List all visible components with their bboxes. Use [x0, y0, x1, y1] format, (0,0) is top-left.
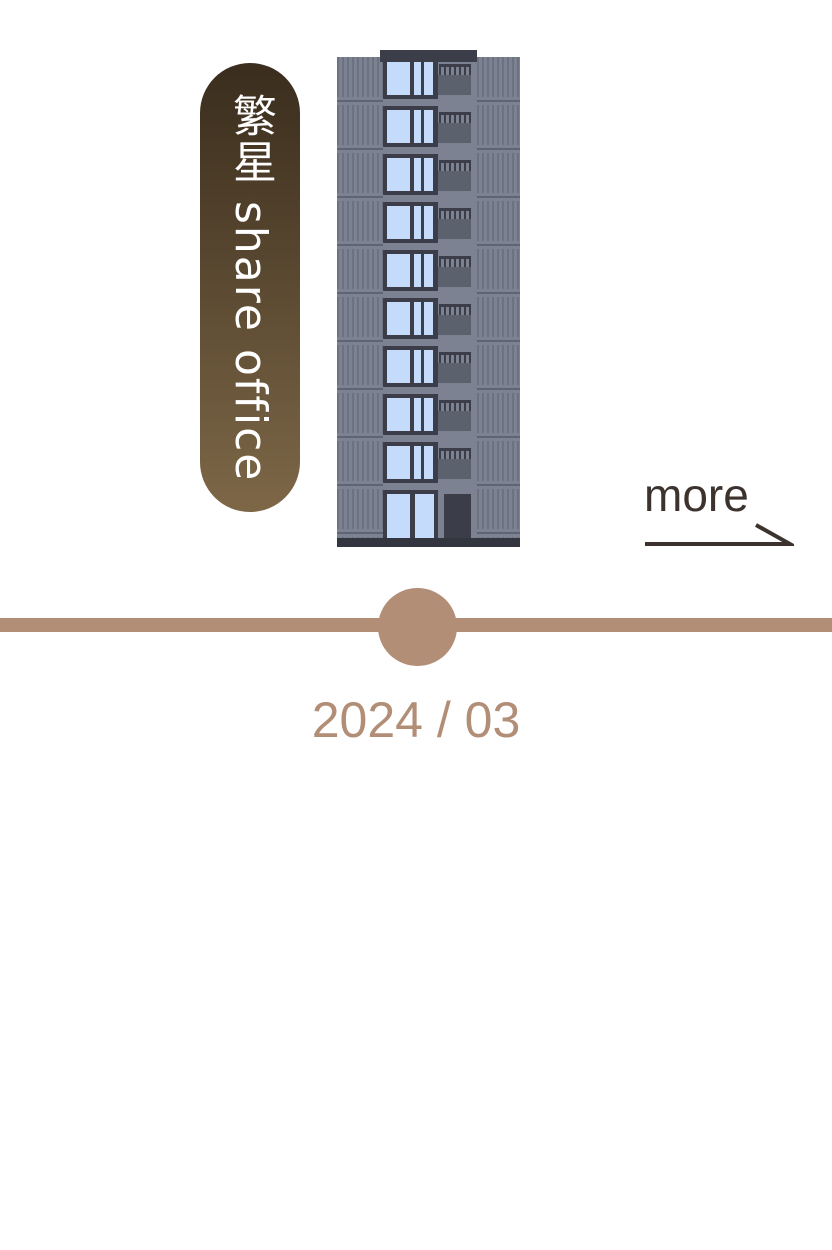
timeline-date: 2024 / 03 — [0, 693, 832, 748]
balcony-panel — [438, 315, 471, 335]
window-pane — [387, 302, 410, 335]
window-pane — [424, 350, 433, 383]
window-pane — [387, 494, 410, 538]
spandrel — [383, 287, 438, 302]
window-pane — [424, 302, 433, 335]
balcony-railing — [439, 208, 471, 219]
window-pane — [414, 446, 421, 479]
balcony-panel — [438, 459, 471, 479]
window-pane — [387, 254, 410, 287]
window-pane — [387, 110, 410, 143]
building-floor — [383, 62, 477, 110]
building-ground-floor — [383, 494, 477, 538]
building-floor — [383, 206, 477, 254]
window-pane — [424, 206, 433, 239]
brand-badge-label: 繁星 share office — [228, 93, 272, 482]
balcony-railing — [439, 448, 471, 459]
window-pane — [424, 446, 433, 479]
window-pane — [424, 398, 433, 431]
window-pane — [414, 158, 421, 191]
building-floor — [383, 158, 477, 206]
balcony-railing — [439, 160, 471, 171]
balcony-panel — [438, 219, 471, 239]
window-pane — [415, 494, 434, 538]
door — [444, 494, 471, 538]
balcony-railing — [439, 400, 471, 411]
building-floor — [383, 398, 477, 446]
window-pane — [387, 206, 410, 239]
building-floors — [383, 62, 477, 538]
spandrel — [383, 95, 438, 110]
building-entrance — [438, 494, 477, 538]
building-left-facade — [337, 57, 383, 538]
window-pane — [424, 254, 433, 287]
brand-badge: 繁星 share office — [200, 63, 300, 512]
window-pane — [424, 110, 433, 143]
window-pane — [414, 398, 421, 431]
balcony-railing — [439, 352, 471, 363]
building-right-facade — [477, 57, 520, 538]
building-floor — [383, 446, 477, 494]
more-link[interactable]: more — [644, 472, 794, 548]
spandrel — [383, 191, 438, 206]
window-pane — [414, 302, 421, 335]
window-pane — [387, 350, 410, 383]
building-lobby-glass — [383, 494, 438, 538]
window-pane — [414, 254, 421, 287]
balcony-railing — [439, 304, 471, 315]
balcony-panel — [438, 75, 471, 95]
spandrel — [383, 431, 438, 446]
spandrel — [383, 479, 438, 494]
window-pane — [387, 398, 410, 431]
balcony-panel — [438, 267, 471, 287]
building-floor — [383, 110, 477, 158]
more-link-label: more — [644, 472, 794, 518]
arrow-right-icon — [644, 522, 794, 548]
window-pane — [414, 110, 421, 143]
page: 繁星 share office — [0, 0, 832, 1250]
spandrel — [383, 239, 438, 254]
window-pane — [387, 158, 410, 191]
balcony-panel — [438, 171, 471, 191]
building-base — [337, 538, 520, 547]
window-pane — [414, 350, 421, 383]
window-pane — [424, 62, 433, 95]
spandrel — [383, 383, 438, 398]
balcony-railing — [439, 112, 471, 123]
window-pane — [414, 62, 421, 95]
spandrel — [383, 335, 438, 350]
building-floor — [383, 254, 477, 302]
window-pane — [424, 158, 433, 191]
balcony-railing — [439, 256, 471, 267]
window-pane — [387, 446, 410, 479]
building-floor — [383, 350, 477, 398]
building-illustration — [337, 50, 520, 547]
balcony-railing — [439, 64, 471, 75]
balcony-panel — [438, 123, 471, 143]
balcony-panel — [438, 411, 471, 431]
building-upper-floors — [383, 62, 477, 494]
building-roof-cap — [380, 50, 477, 62]
building-floor — [383, 302, 477, 350]
window-pane — [414, 206, 421, 239]
spandrel — [383, 143, 438, 158]
window-pane — [387, 62, 410, 95]
timeline-marker — [378, 588, 457, 666]
balcony-panel — [438, 363, 471, 383]
